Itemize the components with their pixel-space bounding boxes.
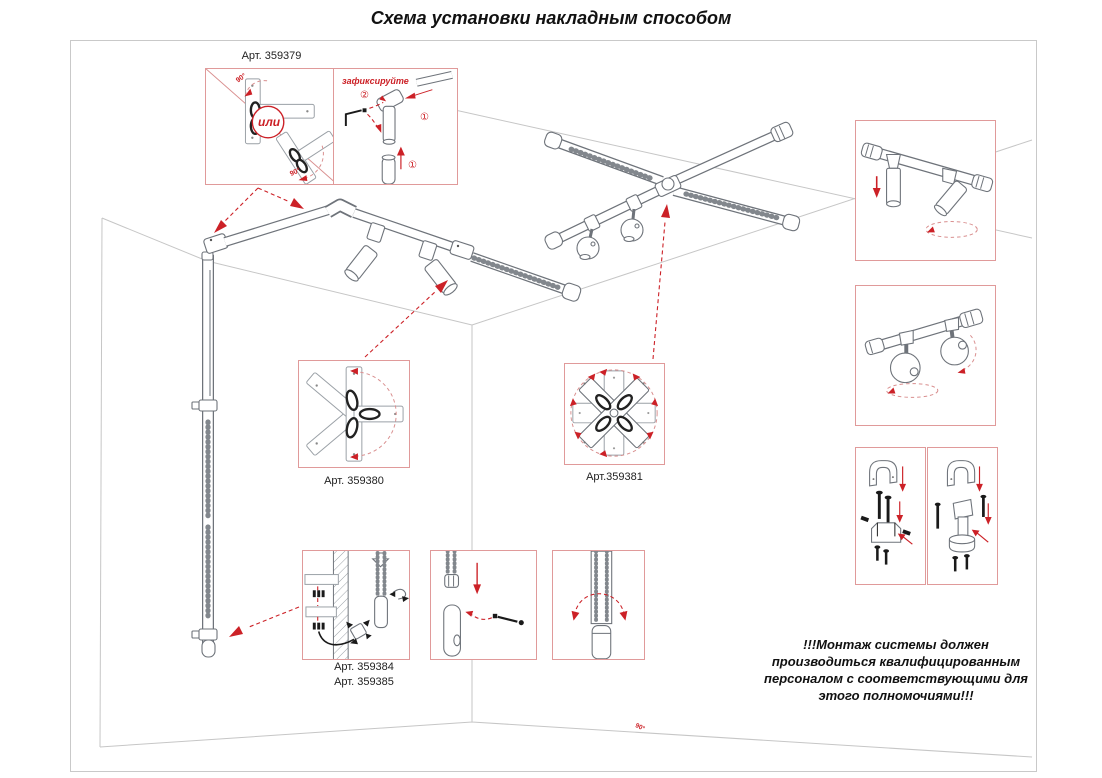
fixation-illustration xyxy=(334,69,457,184)
label-art-359381: Арт.359381 xyxy=(564,471,665,483)
label-art-359384: Арт. 359384 xyxy=(310,661,418,673)
callout-fix-top: зафиксируйте ② ① ① xyxy=(333,68,458,185)
arrow-to-cross xyxy=(661,204,670,218)
step-2: ② xyxy=(360,91,369,101)
installation-scheme-page: Схема установки накладным способом xyxy=(0,0,1102,778)
warning-text: !!!Монтаж системы должен производиться к… xyxy=(752,636,1040,705)
step-1-bottom: ① xyxy=(408,161,417,171)
chain-rotation-illustration xyxy=(553,551,644,659)
callout-art-359379: 90° 90° или xyxy=(205,68,338,185)
cross-plate-illustration xyxy=(299,361,409,467)
page-title: Схема установки накладным способом xyxy=(0,8,1102,29)
wall-pole xyxy=(192,252,217,657)
callout-art-359384: ON OFF AC 220В Драйвер xyxy=(302,550,410,660)
power-connection-illustration xyxy=(303,551,409,659)
callout-art-359383: Арт. 359383 ③ ② ④ ① xyxy=(927,447,998,585)
callout-art-359375: Арт. 359375 350° 90° xyxy=(855,285,996,426)
callout-art-359373: Арт. 359373 ① ② 360° xyxy=(855,120,996,261)
cross-rotation-illustration xyxy=(565,364,664,464)
spotlight-1 xyxy=(343,244,378,283)
fix-label: зафиксируйте xyxy=(342,76,409,86)
label-art-359379: Арт. 359379 xyxy=(205,50,338,62)
label-art-359380: Арт. 359380 xyxy=(298,475,410,487)
arrow-to-elbow xyxy=(290,198,304,209)
wall-tube-run xyxy=(203,205,582,302)
ball-tube-illustration xyxy=(856,286,995,425)
callout-rotate-350: 350° xyxy=(552,550,645,660)
tube-connector xyxy=(449,240,474,260)
step-1-tube: ① xyxy=(420,113,429,123)
callout-art-359382: Арт. 359382 ③ ② ④ ① xyxy=(855,447,926,585)
chain-fixation-illustration xyxy=(431,551,536,659)
post-mount-illustration xyxy=(928,448,997,584)
arrow-to-pole-clamp xyxy=(229,626,243,637)
ceiling-cross-run xyxy=(543,121,801,259)
clip-mount-illustration xyxy=(856,448,925,584)
callout-fix-bottom: ① зафиксируйте ② xyxy=(430,550,537,660)
arrow-to-corner-clamp xyxy=(214,220,227,233)
spot-tube-illustration xyxy=(856,121,995,260)
callout-art-359381 xyxy=(564,363,665,465)
pole-mid-clamp xyxy=(199,400,217,411)
callout-art-359380: 90° 90° xyxy=(298,360,410,468)
or-label: или xyxy=(258,115,280,129)
pole-bottom-clamp xyxy=(199,629,217,640)
pole-end-cap xyxy=(202,640,215,657)
label-art-359385: Арт. 359385 xyxy=(310,676,418,688)
